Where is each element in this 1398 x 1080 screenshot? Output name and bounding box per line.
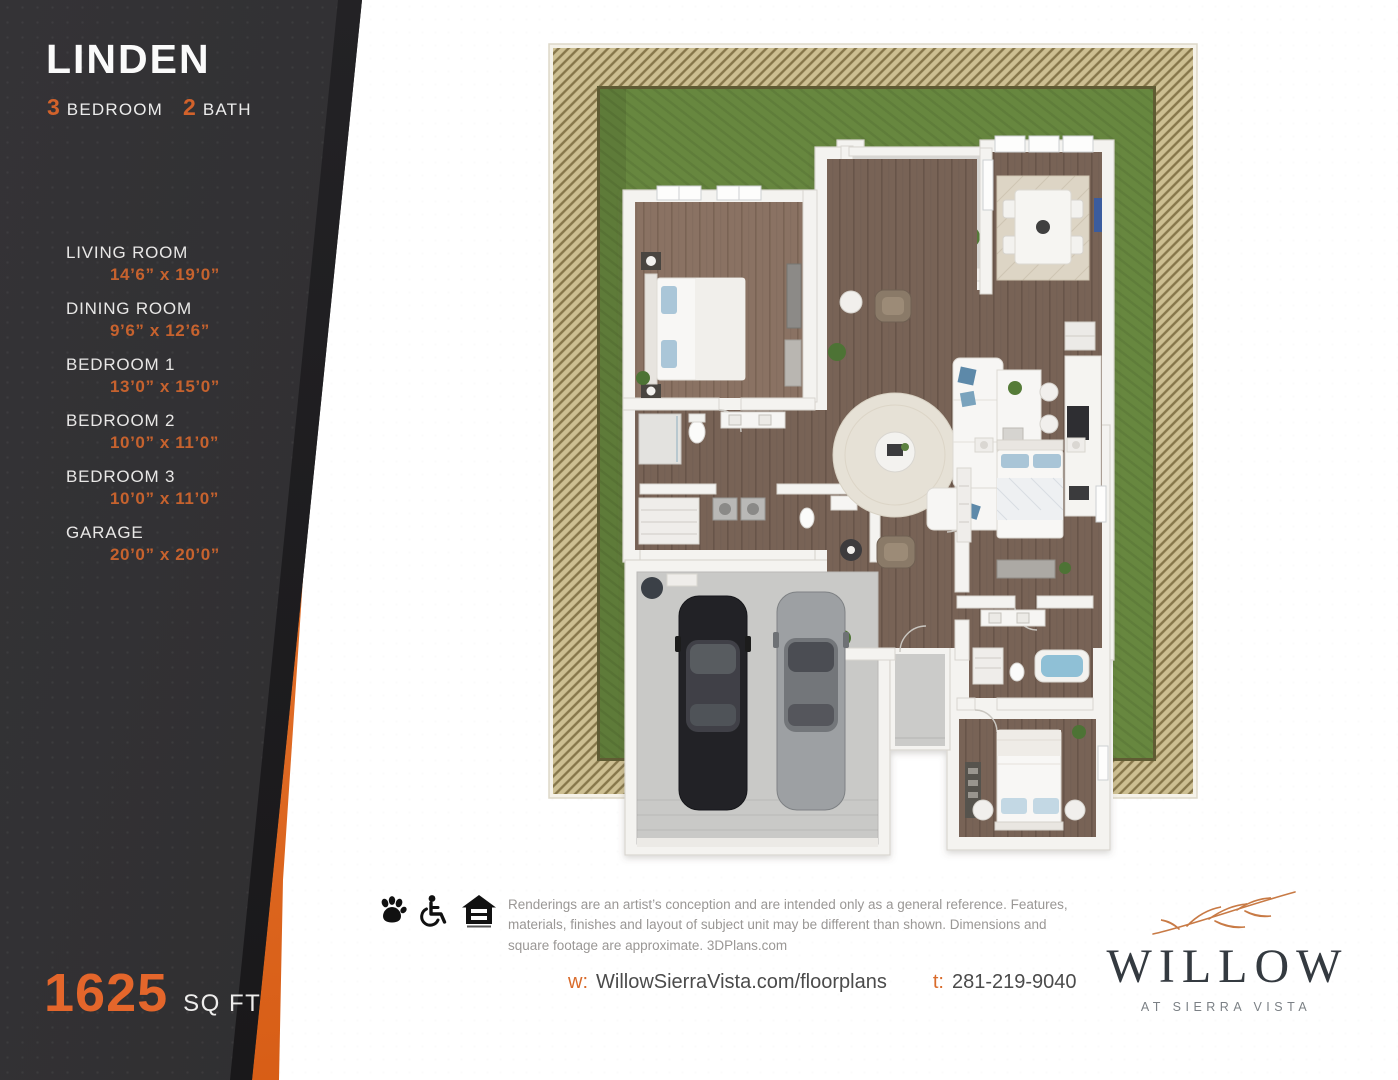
brand-logo: WILLOW AT SIERRA VISTA bbox=[1094, 884, 1354, 1014]
water-heater bbox=[641, 577, 663, 599]
plan-name: LINDEN bbox=[46, 36, 211, 83]
room-dims: 13’0” x 15’0” bbox=[66, 377, 220, 397]
paw-icon bbox=[376, 894, 408, 926]
list-item: GARAGE 20’0” x 20’0” bbox=[66, 523, 220, 565]
sidebar-content: LINDEN 3 BEDROOM 2 BATH LIVING ROOM 14’6… bbox=[0, 0, 330, 1080]
sqft-unit: SQ FT bbox=[183, 990, 261, 1018]
room-dims: 20’0” x 20’0” bbox=[66, 545, 220, 565]
web-prefix: w: bbox=[568, 971, 588, 994]
room-name: GARAGE bbox=[66, 523, 220, 543]
website-text: WillowSierraVista.com/floorplans bbox=[596, 971, 887, 994]
room-name: LIVING ROOM bbox=[66, 243, 220, 263]
bath-label: BATH bbox=[203, 100, 252, 120]
room-name: BEDROOM 3 bbox=[66, 467, 220, 487]
disclaimer-text: Renderings are an artist’s conception an… bbox=[508, 895, 1086, 956]
room-dims: 14’6” x 19’0” bbox=[66, 265, 220, 285]
floor-plan-rendering bbox=[545, 40, 1201, 876]
brochure-page: LINDEN 3 BEDROOM 2 BATH LIVING ROOM 14’6… bbox=[0, 0, 1398, 1080]
bed-bath-summary: 3 BEDROOM 2 BATH bbox=[47, 94, 272, 121]
room-name: BEDROOM 1 bbox=[66, 355, 220, 375]
equal-housing-icon bbox=[461, 894, 497, 930]
wheelchair-accessible-icon bbox=[418, 894, 451, 927]
bed-label: BEDROOM bbox=[67, 100, 163, 120]
room-dims: 9’6” x 12’6” bbox=[66, 321, 220, 341]
car-silver bbox=[773, 592, 849, 810]
room-name: DINING ROOM bbox=[66, 299, 220, 319]
willow-branch-icon bbox=[1149, 884, 1299, 940]
phone-text: 281-219-9040 bbox=[952, 971, 1077, 994]
house bbox=[623, 136, 1114, 855]
certification-icons bbox=[376, 894, 497, 930]
list-item: BEDROOM 3 10’0” x 11’0” bbox=[66, 467, 220, 509]
square-footage: 1625 SQ FT bbox=[44, 962, 261, 1024]
list-item: LIVING ROOM 14’6” x 19’0” bbox=[66, 243, 220, 285]
room-dimension-list: LIVING ROOM 14’6” x 19’0” DINING ROOM 9’… bbox=[66, 243, 220, 579]
list-item: BEDROOM 1 13’0” x 15’0” bbox=[66, 355, 220, 397]
website-pair: w: WillowSierraVista.com/floorplans bbox=[568, 971, 887, 994]
bed-count: 3 bbox=[47, 94, 60, 121]
room-dims: 10’0” x 11’0” bbox=[66, 433, 220, 453]
tel-prefix: t: bbox=[933, 971, 944, 994]
list-item: DINING ROOM 9’6” x 12’6” bbox=[66, 299, 220, 341]
brand-name: WILLOW bbox=[1101, 942, 1354, 992]
bath-count: 2 bbox=[183, 94, 196, 121]
sqft-value: 1625 bbox=[44, 962, 168, 1024]
contact-line: w: WillowSierraVista.com/floorplans t: 2… bbox=[568, 971, 1077, 994]
phone-pair: t: 281-219-9040 bbox=[933, 971, 1077, 994]
list-item: BEDROOM 2 10’0” x 11’0” bbox=[66, 411, 220, 453]
room-dims: 10’0” x 11’0” bbox=[66, 489, 220, 509]
room-name: BEDROOM 2 bbox=[66, 411, 220, 431]
car-black bbox=[675, 596, 751, 810]
brand-tagline: AT SIERRA VISTA bbox=[1098, 1000, 1354, 1014]
